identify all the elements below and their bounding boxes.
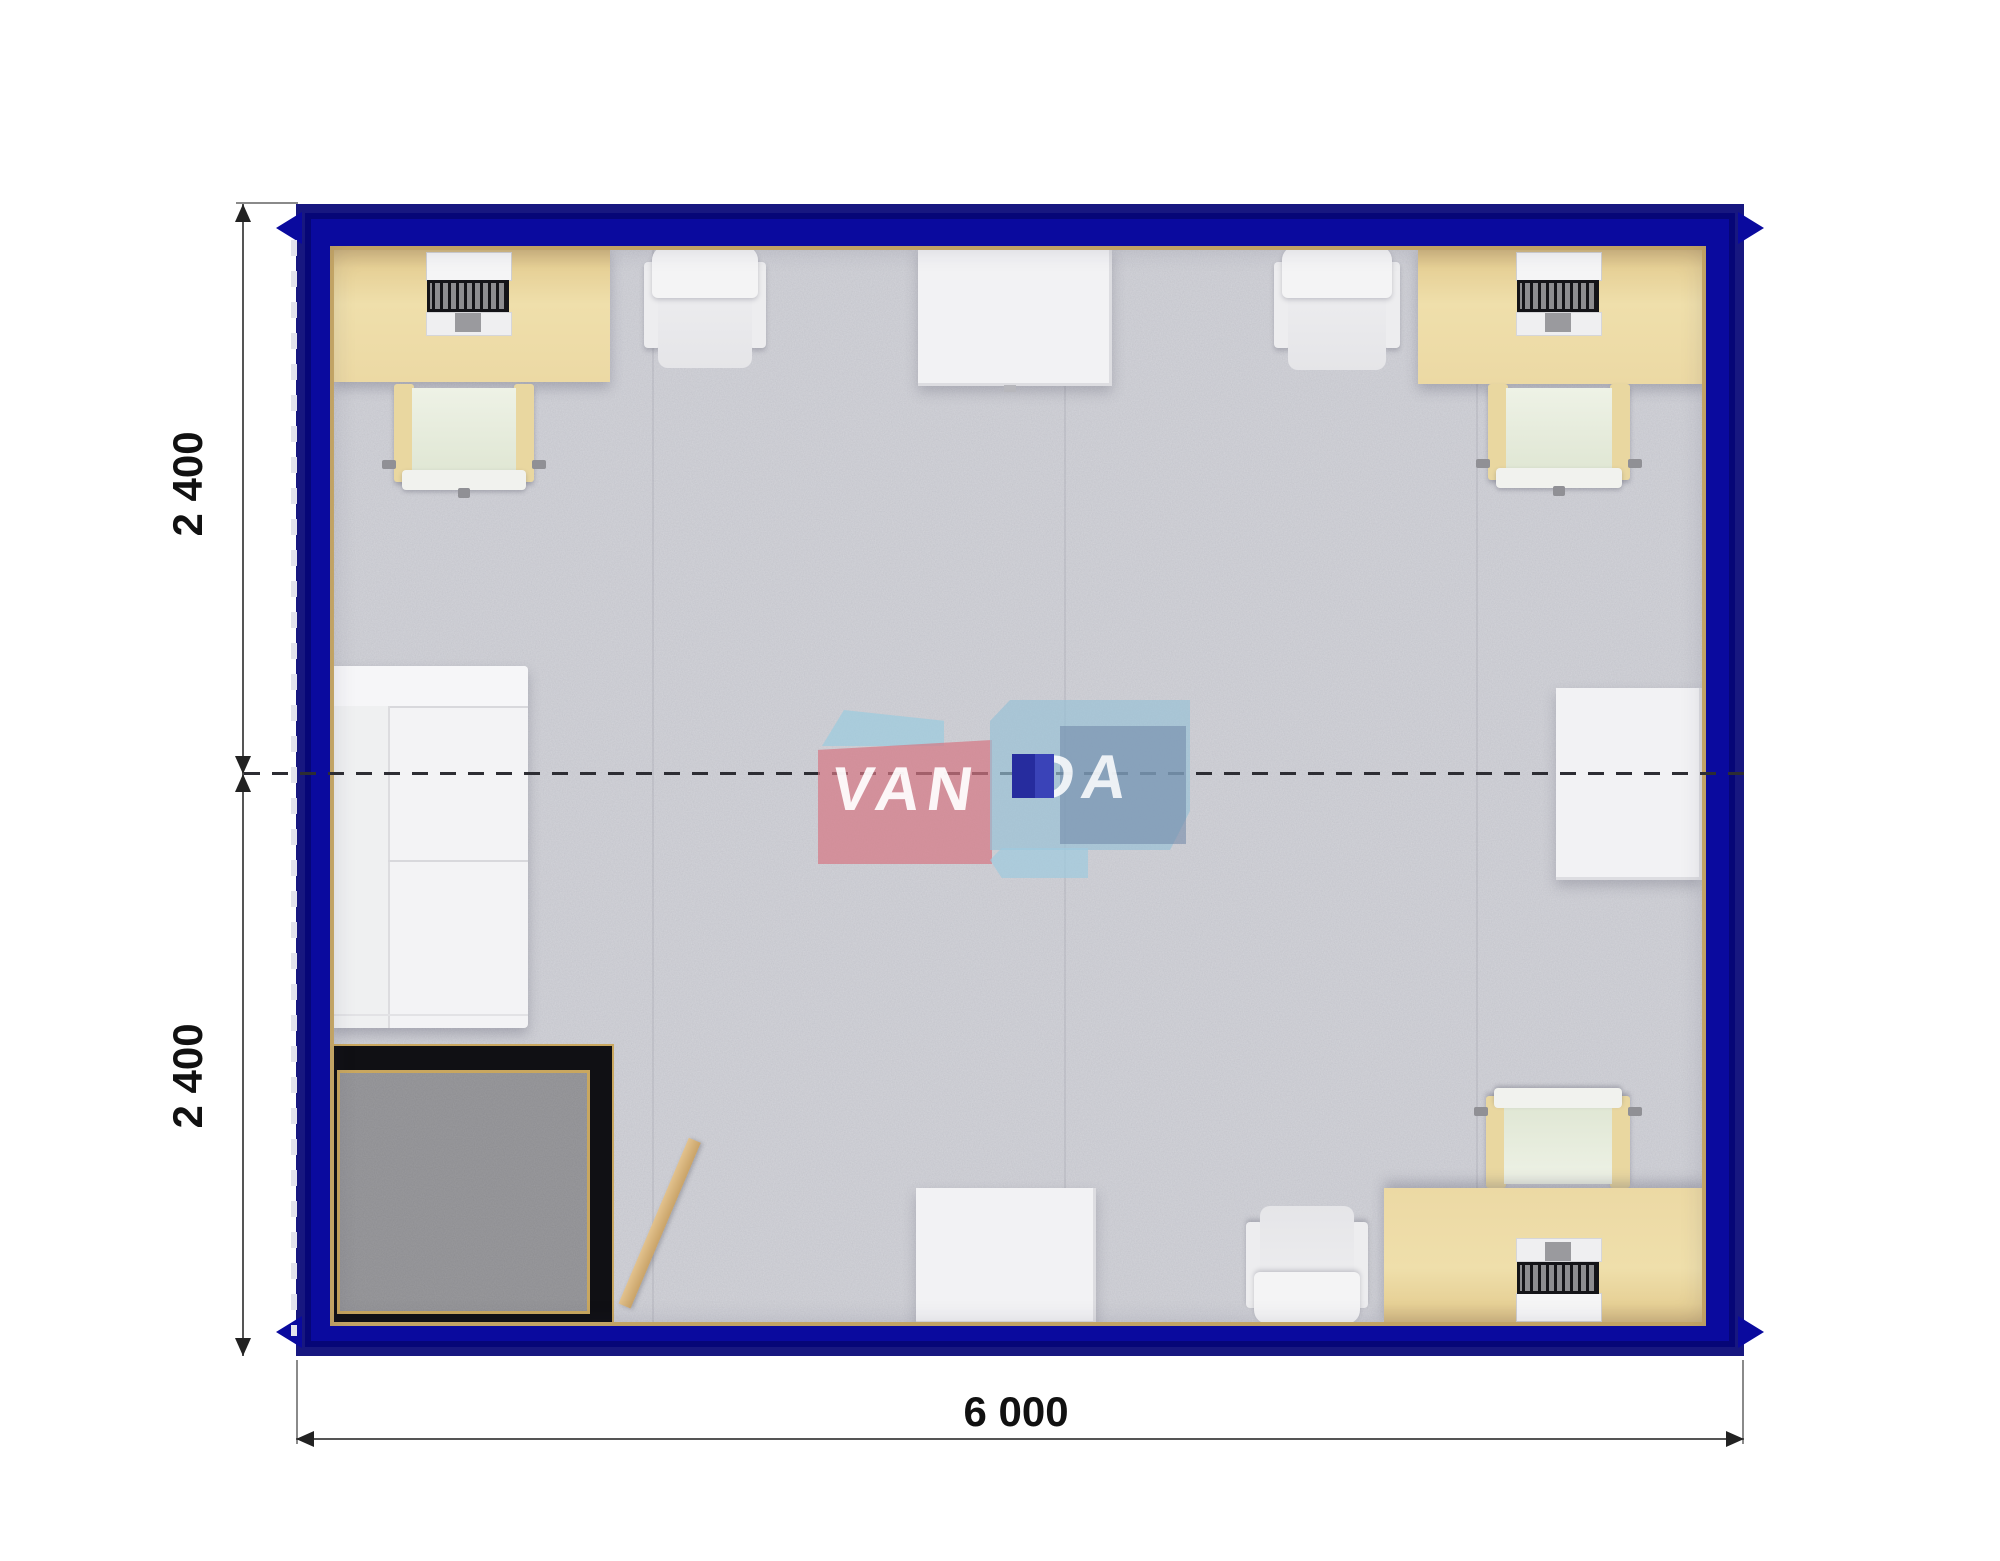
desk-top-left [332, 246, 610, 382]
laptop-top-left [426, 252, 510, 334]
dim-arrow-down-icon [235, 1338, 251, 1356]
logo-text-van: VAN [827, 754, 984, 825]
chair-backrest [1494, 1088, 1622, 1108]
logo-navy-square [1012, 754, 1054, 798]
office-chair-top-right [1488, 384, 1630, 488]
dimension-label-width: 6 000 [963, 1388, 1068, 1436]
laptop-screen [1516, 252, 1602, 281]
chair-seat [1504, 1102, 1612, 1184]
carpet-seam [1476, 246, 1478, 1326]
visitor-chair-top-left [644, 246, 766, 368]
chair-caster [458, 488, 470, 498]
visitor-chair-bottom [1246, 1206, 1368, 1324]
dim-arrow-left-icon [296, 1431, 314, 1447]
dim-arrow-up-icon [235, 774, 251, 792]
chair-backrest [1254, 1272, 1360, 1324]
sofa-backrest [330, 706, 390, 1028]
vanda-watermark-logo: VAN DA [812, 696, 1204, 884]
extension-line-bottom-left [296, 1360, 298, 1444]
laptop-top-right [1516, 252, 1600, 334]
chair-armrest [1488, 384, 1508, 480]
desk-bottom-right [1384, 1188, 1706, 1326]
laptop-screen [1516, 1293, 1602, 1322]
chair-caster [1553, 486, 1565, 496]
chair-caster [1476, 459, 1490, 468]
chair-backrest [402, 470, 526, 490]
entry-vestibule [330, 1044, 614, 1326]
corner-lug-icon [276, 1316, 302, 1348]
laptop-bottom-right [1516, 1240, 1600, 1322]
corner-lug-icon [1738, 1316, 1764, 1348]
vestibule-carpet-texture [340, 1073, 590, 1314]
chair-caster [1474, 1107, 1488, 1116]
chair-caster [532, 460, 546, 469]
sofa-cushion-seam [388, 860, 528, 862]
chair-armrest [394, 384, 414, 482]
dimension-label-height-bottom: 2 400 [164, 1023, 212, 1128]
chair-armrest [1610, 384, 1630, 480]
wall-base-line [330, 246, 1706, 248]
dimension-label-height-top: 2 400 [164, 431, 212, 536]
logo-blue-flap-shape [990, 848, 1088, 878]
table-right [1556, 688, 1702, 880]
visitor-chair-top-right [1274, 246, 1400, 370]
chair-backrest [652, 246, 758, 298]
chair-caster [382, 460, 396, 469]
chair-armrest [514, 384, 534, 482]
table-bottom-center [916, 1188, 1096, 1324]
chair-armrest [1610, 1096, 1630, 1188]
carpet-seam [652, 246, 654, 1326]
laptop-screen [426, 252, 512, 281]
chair-seat [1506, 388, 1612, 474]
chair-seat [412, 388, 516, 476]
corner-lug-icon [276, 212, 302, 244]
laptop-touchpad [1545, 1242, 1571, 1261]
chair-backrest [1282, 246, 1392, 298]
sofa [330, 666, 528, 1028]
laptop-keyboard [427, 280, 509, 312]
sofa-cushion-seam [330, 1014, 528, 1016]
chair-backrest [1496, 468, 1622, 488]
dimension-line-width [296, 1438, 1744, 1440]
floor-plan-canvas: 2 400 2 400 6 000 [0, 0, 2000, 1561]
chair-caster [1628, 1107, 1642, 1116]
office-chair-top-left [394, 384, 534, 490]
table-leg [1004, 385, 1016, 392]
chair-caster [1628, 459, 1642, 468]
laptop-keyboard [1517, 280, 1599, 312]
desk-top-right [1418, 246, 1706, 384]
laptop-touchpad [455, 313, 481, 332]
chair-armrest [1486, 1096, 1506, 1188]
logo-flap-shape [822, 710, 944, 746]
corner-lug-icon [1738, 212, 1764, 244]
office-chair-bottom-right [1486, 1088, 1630, 1188]
sofa-armrest [330, 666, 528, 708]
extension-line-top-left [236, 202, 298, 204]
laptop-touchpad [1545, 313, 1571, 332]
vestibule-floor [337, 1070, 590, 1314]
wall-panel-dash-marks [291, 240, 297, 1336]
cabinet-top-center [918, 246, 1112, 386]
extension-line-bottom-right [1742, 1360, 1744, 1444]
dim-arrow-up-icon [235, 204, 251, 222]
laptop-keyboard [1517, 1262, 1599, 1294]
